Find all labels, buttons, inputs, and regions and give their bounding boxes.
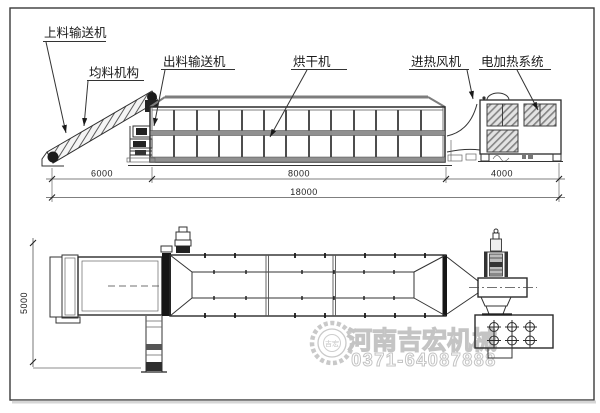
label-leveling-mechanism: 均料机构: [89, 65, 139, 80]
dim-heater-length: 4000: [491, 169, 513, 179]
drawing-canvas: 吉宏 河南吉宏机械 0371-64087888: [0, 0, 600, 413]
label-discharge-conveyor: 出料输送机: [163, 54, 226, 69]
watermark-phone: 0371-64087888: [351, 350, 497, 370]
watermark-logo-text: 吉宏: [325, 339, 339, 348]
dim-feed-length: 6000: [91, 169, 113, 179]
burner-port-symbols: [487, 320, 537, 348]
label-feed-conveyor: 上料输送机: [44, 25, 107, 40]
label-dryer: 烘干机: [293, 55, 331, 69]
dim-dryer-length: 8000: [288, 169, 310, 179]
cad-drawing-page: 吉宏 河南吉宏机械 0371-64087888: [0, 0, 600, 413]
label-hot-air-blower: 进热风机: [411, 55, 462, 69]
dim-total-length: 18000: [290, 187, 318, 197]
heating-cabinet-elevation: [466, 93, 563, 162]
page-shadow: [12, 401, 596, 404]
heater-element-block: [487, 130, 518, 152]
label-electric-heating: 电加热系统: [481, 55, 544, 69]
dim-overall-width: 5000: [19, 292, 29, 314]
dryer-elevation: [128, 97, 452, 166]
